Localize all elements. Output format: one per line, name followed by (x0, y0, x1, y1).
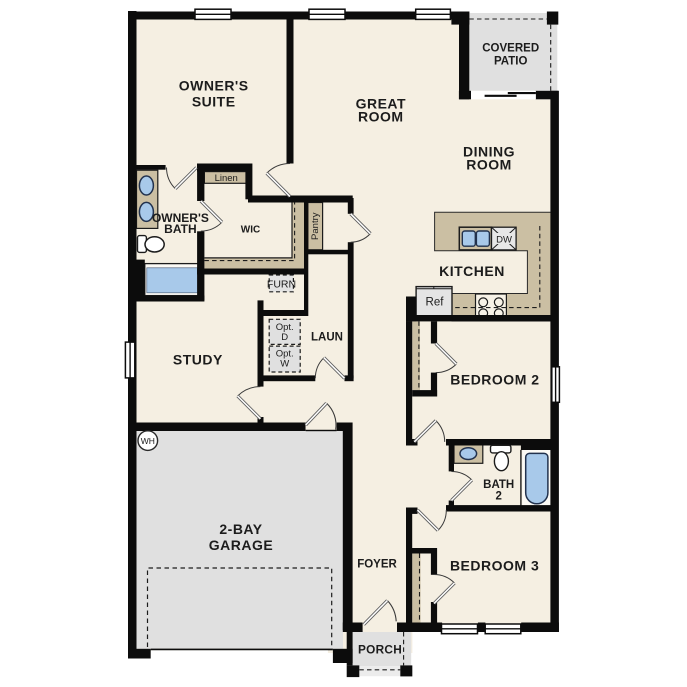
svg-text:Linen: Linen (215, 173, 238, 184)
svg-text:2: 2 (495, 491, 501, 503)
svg-text:STUDY: STUDY (173, 352, 223, 368)
svg-text:2-BAY: 2-BAY (219, 521, 262, 537)
svg-text:W: W (280, 359, 289, 370)
svg-text:GARAGE: GARAGE (209, 537, 273, 553)
svg-text:BATH: BATH (483, 479, 514, 491)
svg-text:KITCHEN: KITCHEN (439, 263, 505, 279)
svg-text:Ref: Ref (426, 297, 445, 309)
svg-text:FURN: FURN (267, 278, 296, 290)
svg-text:PORCH: PORCH (358, 642, 402, 656)
svg-text:WIC: WIC (241, 225, 260, 236)
svg-text:BATH: BATH (164, 222, 196, 236)
svg-text:DW: DW (496, 235, 512, 246)
svg-text:OWNER'S: OWNER'S (179, 78, 249, 94)
svg-text:SUITE: SUITE (192, 93, 236, 109)
svg-text:Pantry: Pantry (310, 212, 321, 240)
svg-text:ROOM: ROOM (358, 109, 404, 125)
svg-text:WH: WH (141, 436, 155, 446)
svg-text:BEDROOM 3: BEDROOM 3 (450, 558, 539, 574)
svg-text:ROOM: ROOM (466, 157, 512, 173)
svg-text:BEDROOM 2: BEDROOM 2 (450, 372, 539, 388)
svg-text:COVERED: COVERED (482, 43, 539, 55)
svg-text:PATIO: PATIO (494, 56, 527, 68)
svg-text:D: D (281, 332, 288, 343)
svg-text:FOYER: FOYER (357, 559, 397, 571)
svg-text:LAUN: LAUN (311, 332, 343, 344)
